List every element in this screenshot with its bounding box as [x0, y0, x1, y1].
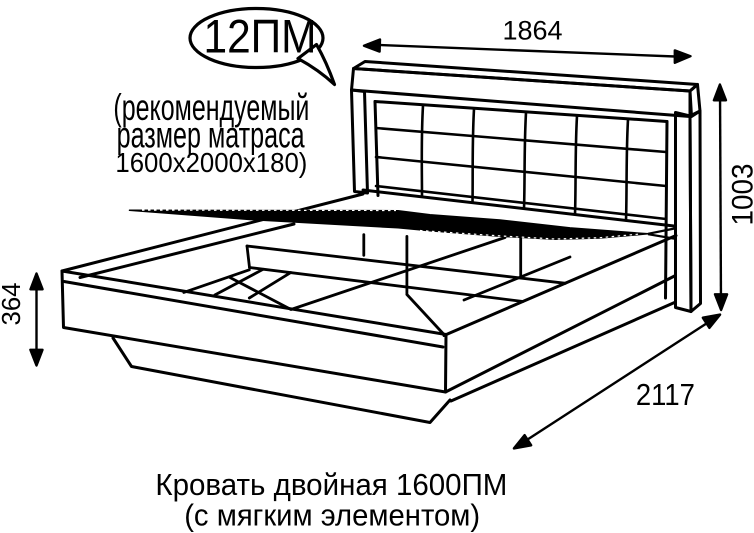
svg-text:364: 364 — [0, 283, 26, 326]
svg-text:2117: 2117 — [636, 377, 695, 412]
svg-text:1864: 1864 — [502, 16, 562, 46]
svg-text:1003: 1003 — [727, 164, 754, 226]
svg-text:1600х2000х180): 1600х2000х180) — [115, 147, 307, 178]
svg-text:(с мягким элементом): (с мягким элементом) — [184, 499, 480, 533]
svg-text:12ПМ: 12ПМ — [204, 11, 317, 64]
svg-text:Кровать двойная 1600ПМ: Кровать двойная 1600ПМ — [155, 468, 507, 502]
